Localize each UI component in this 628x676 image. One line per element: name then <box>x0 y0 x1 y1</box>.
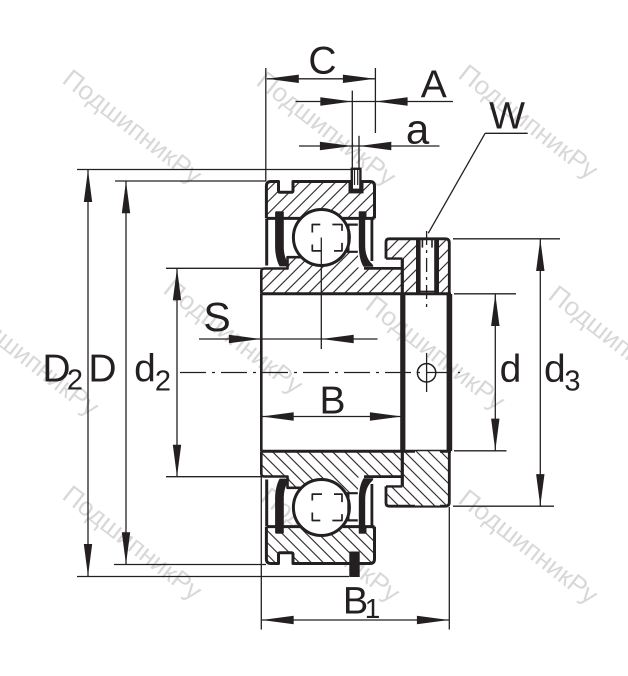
svg-text:2: 2 <box>155 366 171 398</box>
svg-text:1: 1 <box>365 593 381 624</box>
svg-text:D: D <box>88 348 116 391</box>
svg-text:S: S <box>203 294 230 340</box>
svg-text:d: d <box>134 348 156 391</box>
svg-text:d: d <box>544 348 566 391</box>
svg-text:W: W <box>489 95 525 137</box>
svg-text:d: d <box>500 348 522 391</box>
svg-text:3: 3 <box>564 366 580 398</box>
svg-text:C: C <box>308 40 336 83</box>
svg-text:A: A <box>421 63 447 106</box>
svg-text:2: 2 <box>67 365 83 397</box>
svg-text:a: a <box>406 106 430 153</box>
svg-text:B: B <box>319 380 345 423</box>
